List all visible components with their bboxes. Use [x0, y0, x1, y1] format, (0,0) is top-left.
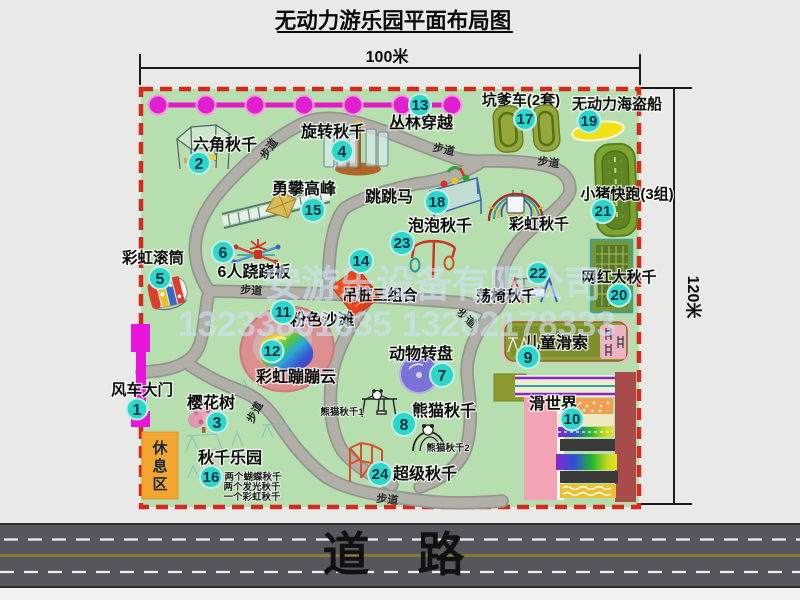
svg-text:旋转秋千: 旋转秋千	[300, 122, 365, 141]
svg-text:一个彩虹秋千: 一个彩虹秋千	[223, 491, 281, 503]
svg-text:秋千乐园: 秋千乐园	[198, 448, 262, 467]
svg-text:息: 息	[152, 457, 167, 475]
svg-text:20: 20	[611, 287, 628, 304]
svg-text:18: 18	[429, 194, 446, 211]
svg-text:安游乐设备有限公司: 安游乐设备有限公司	[264, 263, 602, 305]
svg-text:休: 休	[151, 439, 168, 457]
svg-text:5: 5	[156, 271, 165, 288]
svg-text:步道: 步道	[240, 282, 263, 298]
svg-text:2: 2	[195, 156, 204, 173]
svg-text:无动力游乐园平面布局图: 无动力游乐园平面布局图	[275, 8, 512, 33]
svg-text:超级秋千: 超级秋千	[392, 464, 457, 483]
svg-text:23: 23	[394, 235, 411, 252]
svg-text:9: 9	[524, 350, 533, 367]
svg-text:13: 13	[412, 97, 429, 114]
svg-text:小猪快跑(3组): 小猪快跑(3组)	[580, 185, 673, 203]
svg-text:樱花树: 樱花树	[187, 393, 235, 412]
svg-text:21: 21	[595, 203, 612, 220]
svg-text:17: 17	[517, 111, 534, 128]
svg-text:3: 3	[213, 415, 222, 432]
svg-text:13233861635 13202178333: 13233861635 13202178333	[178, 305, 616, 344]
svg-text:风车大门: 风车大门	[111, 380, 173, 399]
svg-text:120米: 120米	[684, 276, 703, 320]
svg-text:熊猫秋千2: 熊猫秋千2	[426, 442, 469, 454]
svg-text:100米: 100米	[366, 47, 410, 66]
svg-text:10: 10	[564, 411, 581, 428]
svg-text:动物转盘: 动物转盘	[389, 344, 453, 363]
svg-text:勇攀高峰: 勇攀高峰	[272, 179, 337, 198]
svg-text:8: 8	[400, 417, 409, 434]
svg-text:4: 4	[338, 144, 347, 161]
svg-text:跳跳马: 跳跳马	[365, 187, 413, 206]
svg-text:道: 道	[323, 528, 370, 581]
svg-text:7: 7	[438, 368, 447, 385]
svg-text:1: 1	[133, 402, 142, 419]
svg-text:区: 区	[152, 476, 167, 493]
svg-text:12: 12	[264, 343, 281, 360]
svg-text:彩虹秋千: 彩虹秋千	[508, 215, 569, 233]
svg-text:15: 15	[305, 202, 322, 219]
svg-text:彩虹蹦蹦云: 彩虹蹦蹦云	[255, 367, 336, 386]
svg-text:六角秋千: 六角秋千	[193, 135, 257, 154]
svg-text:11: 11	[275, 304, 291, 321]
svg-text:22: 22	[530, 265, 547, 282]
svg-text:24: 24	[372, 466, 389, 483]
svg-text:19: 19	[581, 113, 598, 130]
svg-text:16: 16	[203, 469, 220, 486]
svg-text:泡泡秋千: 泡泡秋千	[408, 216, 472, 235]
svg-text:路: 路	[418, 528, 466, 581]
svg-text:6: 6	[219, 245, 228, 262]
svg-text:熊猫秋千1: 熊猫秋千1	[320, 406, 364, 418]
svg-text:熊猫秋千: 熊猫秋千	[412, 401, 476, 420]
svg-text:彩虹滚筒: 彩虹滚筒	[121, 248, 184, 267]
svg-text:14: 14	[353, 253, 370, 270]
